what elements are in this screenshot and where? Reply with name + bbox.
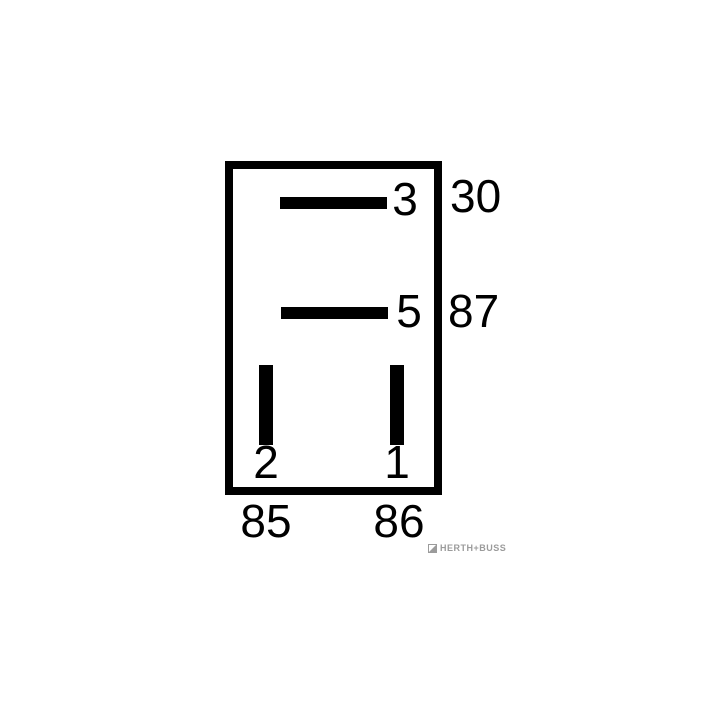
herth-buss-logo-icon: [428, 544, 437, 553]
pin-1-number-label: 1: [380, 439, 414, 485]
brand-logo: HERTH+BUSS: [428, 542, 506, 554]
pin-5-number-label: 5: [392, 288, 426, 334]
pin-2-contact-bar: [259, 365, 273, 445]
brand-logo-text: HERTH+BUSS: [440, 542, 506, 554]
terminal-85-label: 85: [240, 498, 292, 544]
pin-5-contact-bar: [281, 307, 388, 319]
pin-1-contact-bar: [390, 365, 404, 445]
pin-2-number-label: 2: [249, 439, 283, 485]
terminal-30-label: 30: [450, 173, 502, 219]
pin-3-contact-bar: [280, 197, 387, 209]
terminal-86-label: 86: [373, 498, 425, 544]
terminal-87-label: 87: [448, 288, 500, 334]
relay-pinout-diagram: 3 5 2 1 30 87 85 86 HERTH+BUSS: [0, 0, 720, 720]
pin-3-number-label: 3: [388, 176, 422, 222]
